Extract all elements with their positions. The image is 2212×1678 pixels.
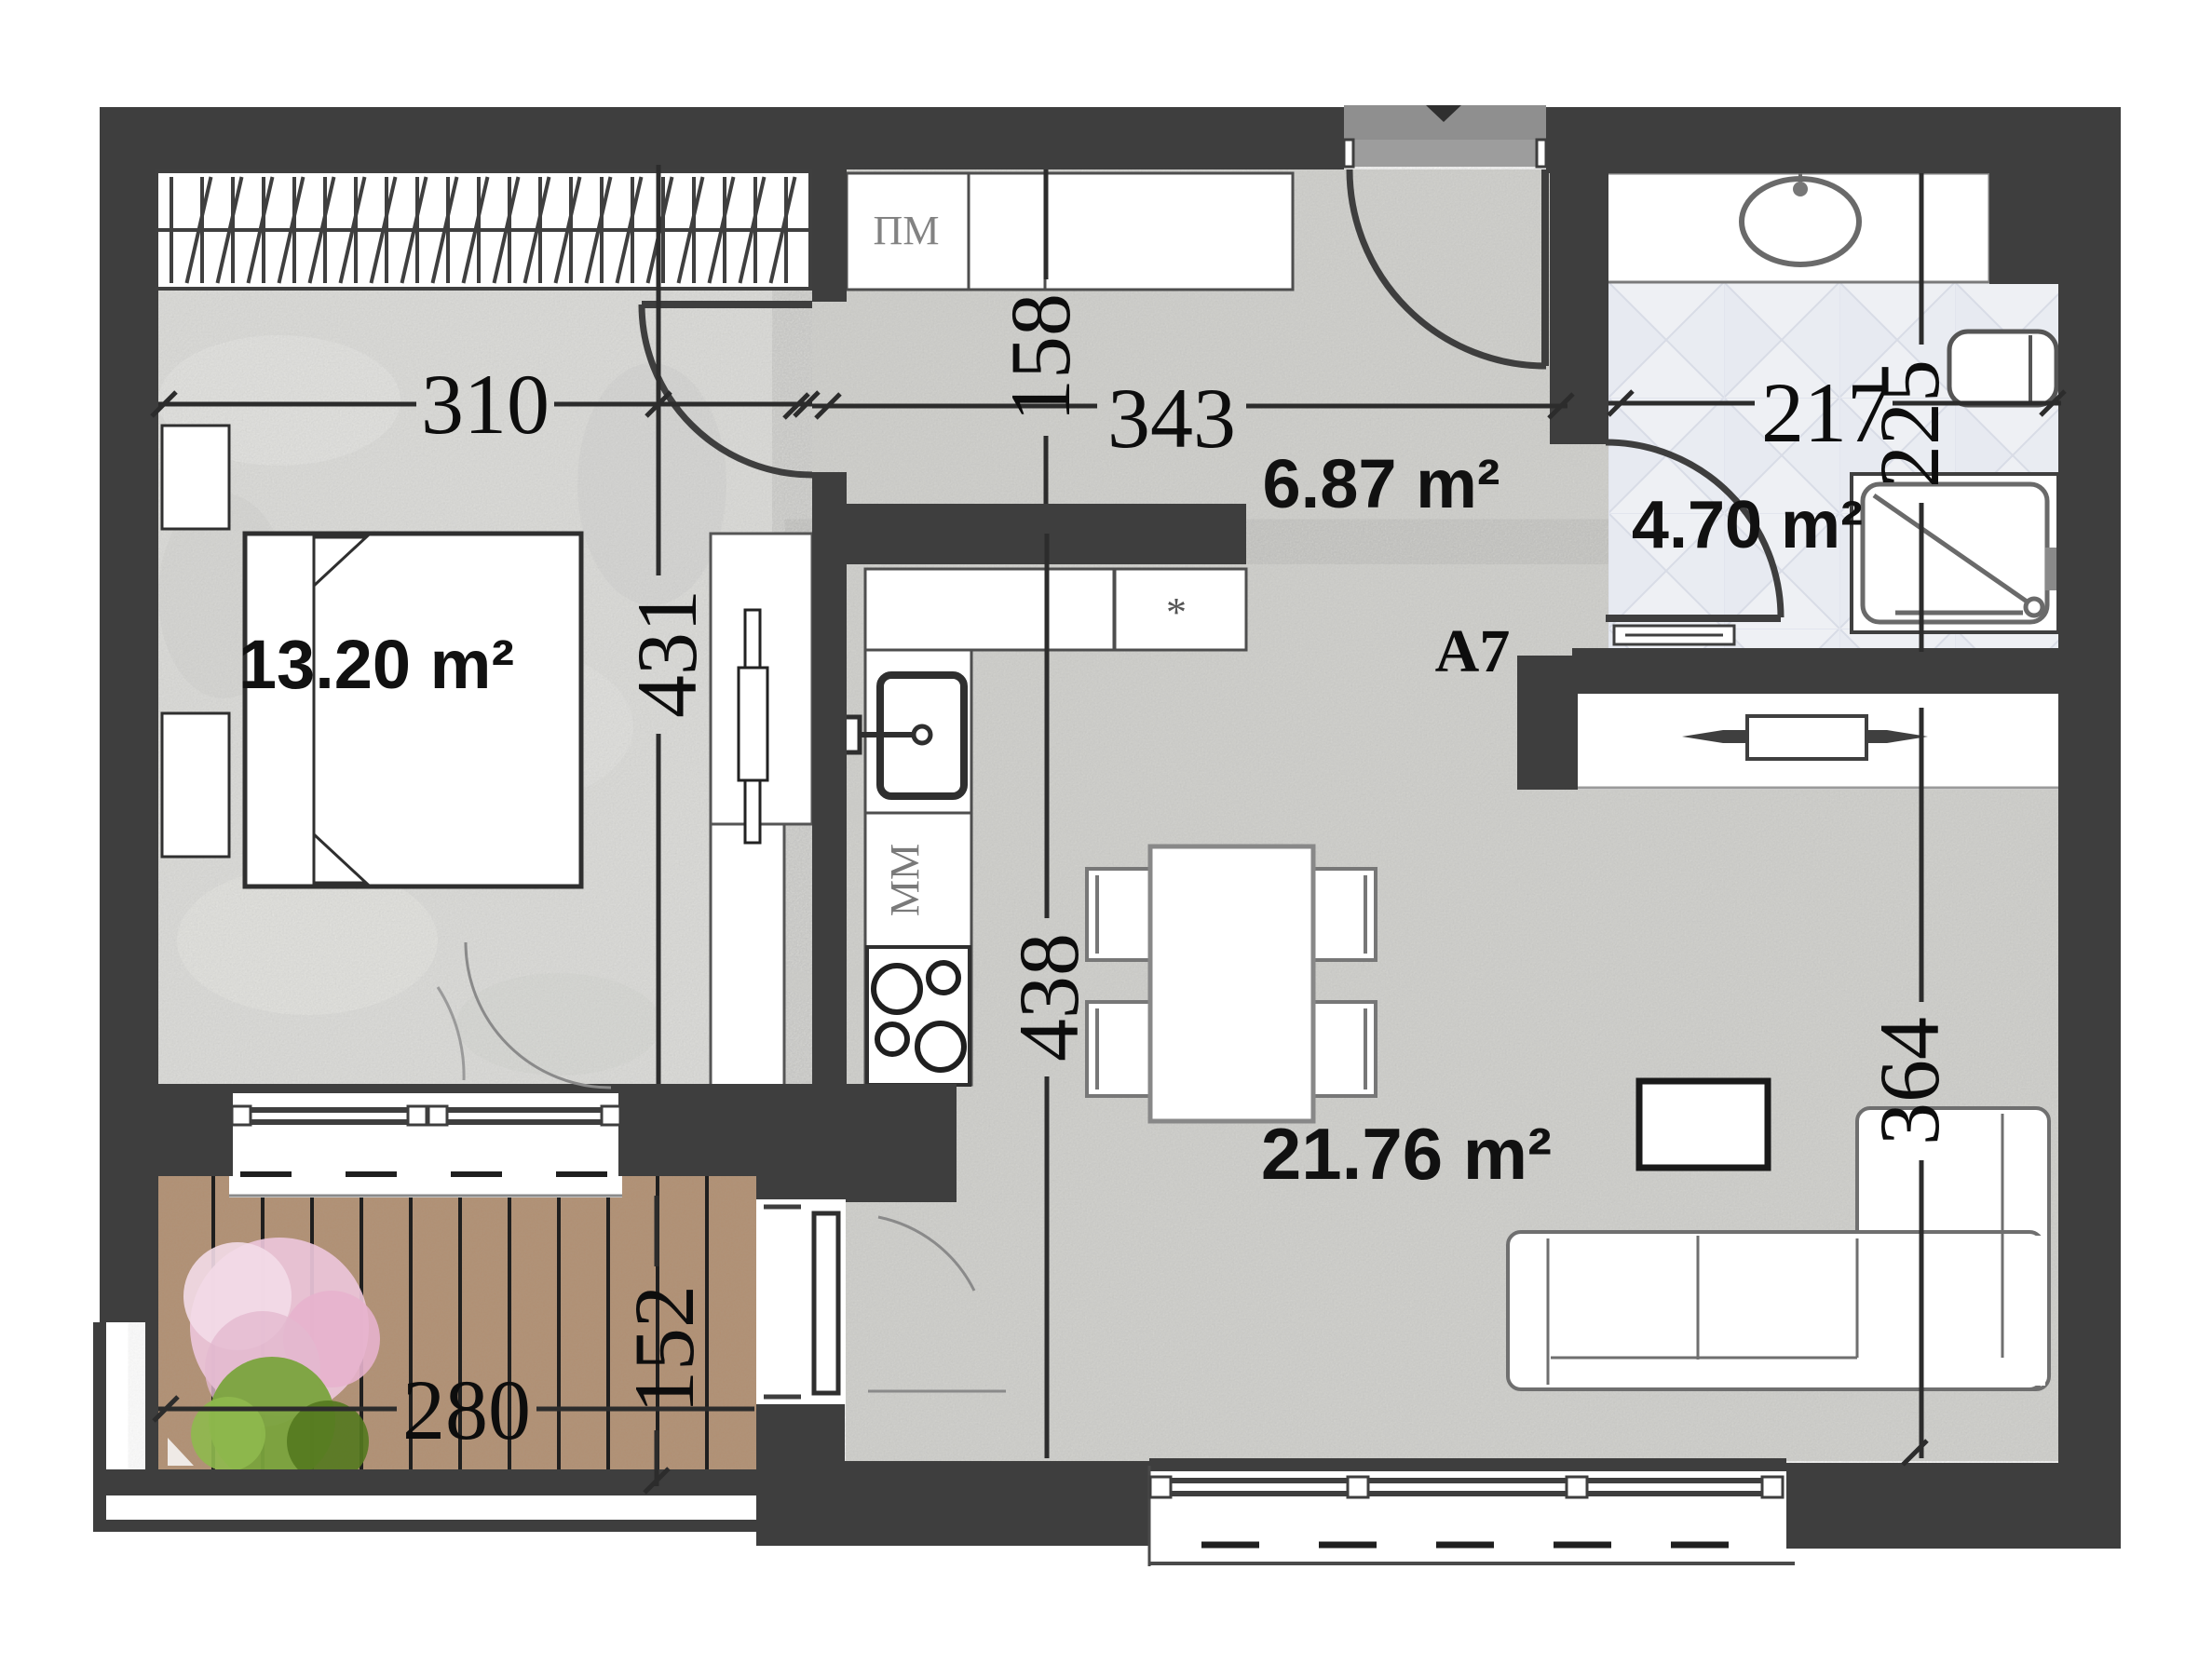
svg-text:*: *: [1166, 589, 1187, 635]
svg-text:ПМ: ПМ: [874, 208, 940, 253]
svg-text:A7: A7: [1435, 617, 1511, 685]
svg-text:225: 225: [1862, 359, 1957, 488]
svg-text:MM: MM: [882, 844, 928, 916]
svg-text:310: 310: [421, 357, 550, 452]
svg-text:364: 364: [1862, 1017, 1957, 1145]
svg-text:438: 438: [1001, 933, 1096, 1062]
svg-text:280: 280: [402, 1362, 531, 1457]
svg-text:6.87 m²: 6.87 m²: [1262, 445, 1500, 522]
svg-text:158: 158: [993, 293, 1088, 422]
svg-text:13.20 m²: 13.20 m²: [238, 626, 514, 703]
svg-text:152: 152: [617, 1285, 712, 1414]
svg-text:343: 343: [1107, 371, 1236, 466]
svg-text:4.70 m²: 4.70 m²: [1632, 488, 1863, 562]
svg-text:431: 431: [619, 589, 714, 718]
svg-text:21.76 m²: 21.76 m²: [1261, 1113, 1552, 1195]
